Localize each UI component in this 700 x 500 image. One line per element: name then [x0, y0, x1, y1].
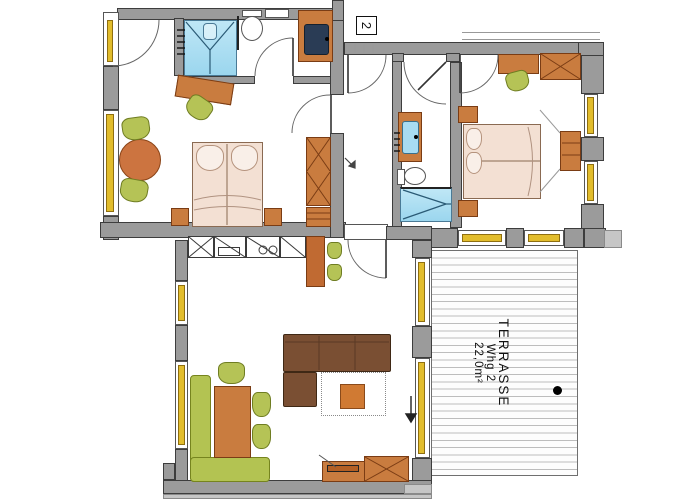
- terrace-label: TERRASSE Whg 2 22,0m²: [465, 318, 519, 408]
- dresser-bedroom1: [306, 207, 331, 227]
- wardrobe-bedroom2: [540, 53, 581, 80]
- wall-bathroom1-pier: [174, 18, 184, 76]
- wardrobe-bedroom1: [306, 137, 331, 206]
- wall-terrace-c: [564, 228, 584, 248]
- wall-bath2-top-a: [392, 53, 404, 62]
- door-bedroom1: [292, 95, 331, 133]
- terrace-window-b: [528, 234, 560, 242]
- dining-chair-right-1: [252, 392, 271, 417]
- window-living-left-1: [178, 285, 185, 321]
- window-living-right-2: [418, 362, 425, 454]
- wall-terrace-step: [604, 230, 622, 248]
- door-bedroom2-balcony: [460, 55, 498, 93]
- terrace-window-a: [462, 234, 502, 242]
- terrace-area: 22,0m²: [473, 342, 485, 384]
- cabinet-x-living: [364, 456, 409, 482]
- chair-table-bottom: [118, 177, 150, 205]
- pillow-icon: [196, 145, 224, 171]
- wall-bathroom1-bottom-b: [293, 76, 333, 84]
- door-bath2: [404, 62, 446, 104]
- shower2-icon: [400, 187, 452, 222]
- kitchen-cabinet-x: [188, 236, 214, 258]
- wall-living-left-a: [175, 240, 188, 281]
- wall-living-bl-corner: [163, 463, 175, 480]
- wall-left-a: [103, 66, 119, 110]
- nightstand-bedroom2-top: [458, 106, 478, 123]
- apartment-number-box: 2: [356, 16, 377, 35]
- pillow-icon: [466, 128, 482, 150]
- desk-chair-bedroom2: [504, 68, 531, 93]
- door-bath1: [255, 38, 293, 76]
- wall-right-pier2: [581, 137, 604, 161]
- faucet-bath1-icon: [325, 37, 329, 41]
- wall-living-br-step: [404, 484, 432, 494]
- door-living: [348, 240, 386, 278]
- nightstand-bedroom1-left: [171, 208, 189, 226]
- kitchen-cooktop-unit: [246, 236, 280, 258]
- window-bedroom2-b: [587, 164, 594, 201]
- wall-living-right-pierA: [412, 240, 432, 258]
- sofa-chaise: [283, 372, 317, 407]
- bar-stool-1: [327, 242, 342, 259]
- pillow-icon: [231, 145, 258, 171]
- wall-right-pier1: [581, 55, 604, 94]
- toilet-icon: [241, 16, 263, 41]
- nightstand-bedroom1-right: [264, 208, 282, 226]
- shower-head-icon: [203, 23, 217, 40]
- bar-counter: [306, 236, 325, 287]
- wall-living-top-right: [386, 226, 432, 240]
- french-door-bedroom1: [113, 20, 159, 66]
- chair-table-top: [121, 115, 152, 142]
- sofa-main: [283, 334, 391, 372]
- nightstand-bedroom2-bottom: [458, 200, 478, 217]
- faucet-bath2-icon: [414, 135, 418, 139]
- wall-terrace-corner: [584, 228, 606, 248]
- hall-arrow-icon: [345, 158, 355, 168]
- window-bedroom1-left: [106, 114, 114, 212]
- terrace-dot: [553, 386, 562, 395]
- pillow-icon: [466, 152, 482, 174]
- wall-living-left-b: [175, 325, 188, 361]
- kitchen-sink-basin: [218, 247, 240, 256]
- apartment-number: 2: [359, 22, 374, 29]
- corner-bench-horizontal: [190, 457, 270, 482]
- terrace-name: TERRASSE: [497, 319, 512, 408]
- wall-right-pier3: [581, 204, 604, 230]
- wall-terrace-a: [430, 228, 458, 248]
- dining-table: [214, 386, 251, 458]
- window-bedroom2-a: [587, 97, 594, 134]
- window-living-right-1: [418, 262, 425, 322]
- wall-living-right-pierB: [412, 326, 432, 358]
- toilet2-icon: [404, 167, 426, 185]
- bar-stool-2: [327, 264, 342, 281]
- french-door-glass: [107, 20, 113, 62]
- wall-bedroom1-right-b: [330, 133, 344, 238]
- tv-dresser-bedroom2: [560, 131, 581, 171]
- kitchen-unit: [280, 236, 306, 258]
- floor-plan: TERRASSE Whg 2 22,0m²: [0, 0, 700, 500]
- coffee-table: [340, 384, 365, 409]
- living-door-opening: [344, 224, 388, 240]
- balcony-rail: [462, 32, 600, 40]
- wall-living-bottom-outer: [163, 494, 432, 499]
- window-living-left-2: [178, 365, 185, 445]
- dining-chair-right-2: [252, 424, 271, 449]
- recess-bath1: [265, 9, 289, 18]
- round-table-icon: [119, 139, 161, 181]
- dining-chair-top: [218, 362, 245, 384]
- wall-living-bottom: [163, 480, 432, 494]
- tv-icon: [327, 465, 359, 472]
- wall-terrace-b: [506, 228, 524, 248]
- terrace-unit: Whg 2: [485, 344, 497, 382]
- wall-living-left-c: [175, 449, 188, 482]
- wall-bath2-top-b: [446, 53, 460, 62]
